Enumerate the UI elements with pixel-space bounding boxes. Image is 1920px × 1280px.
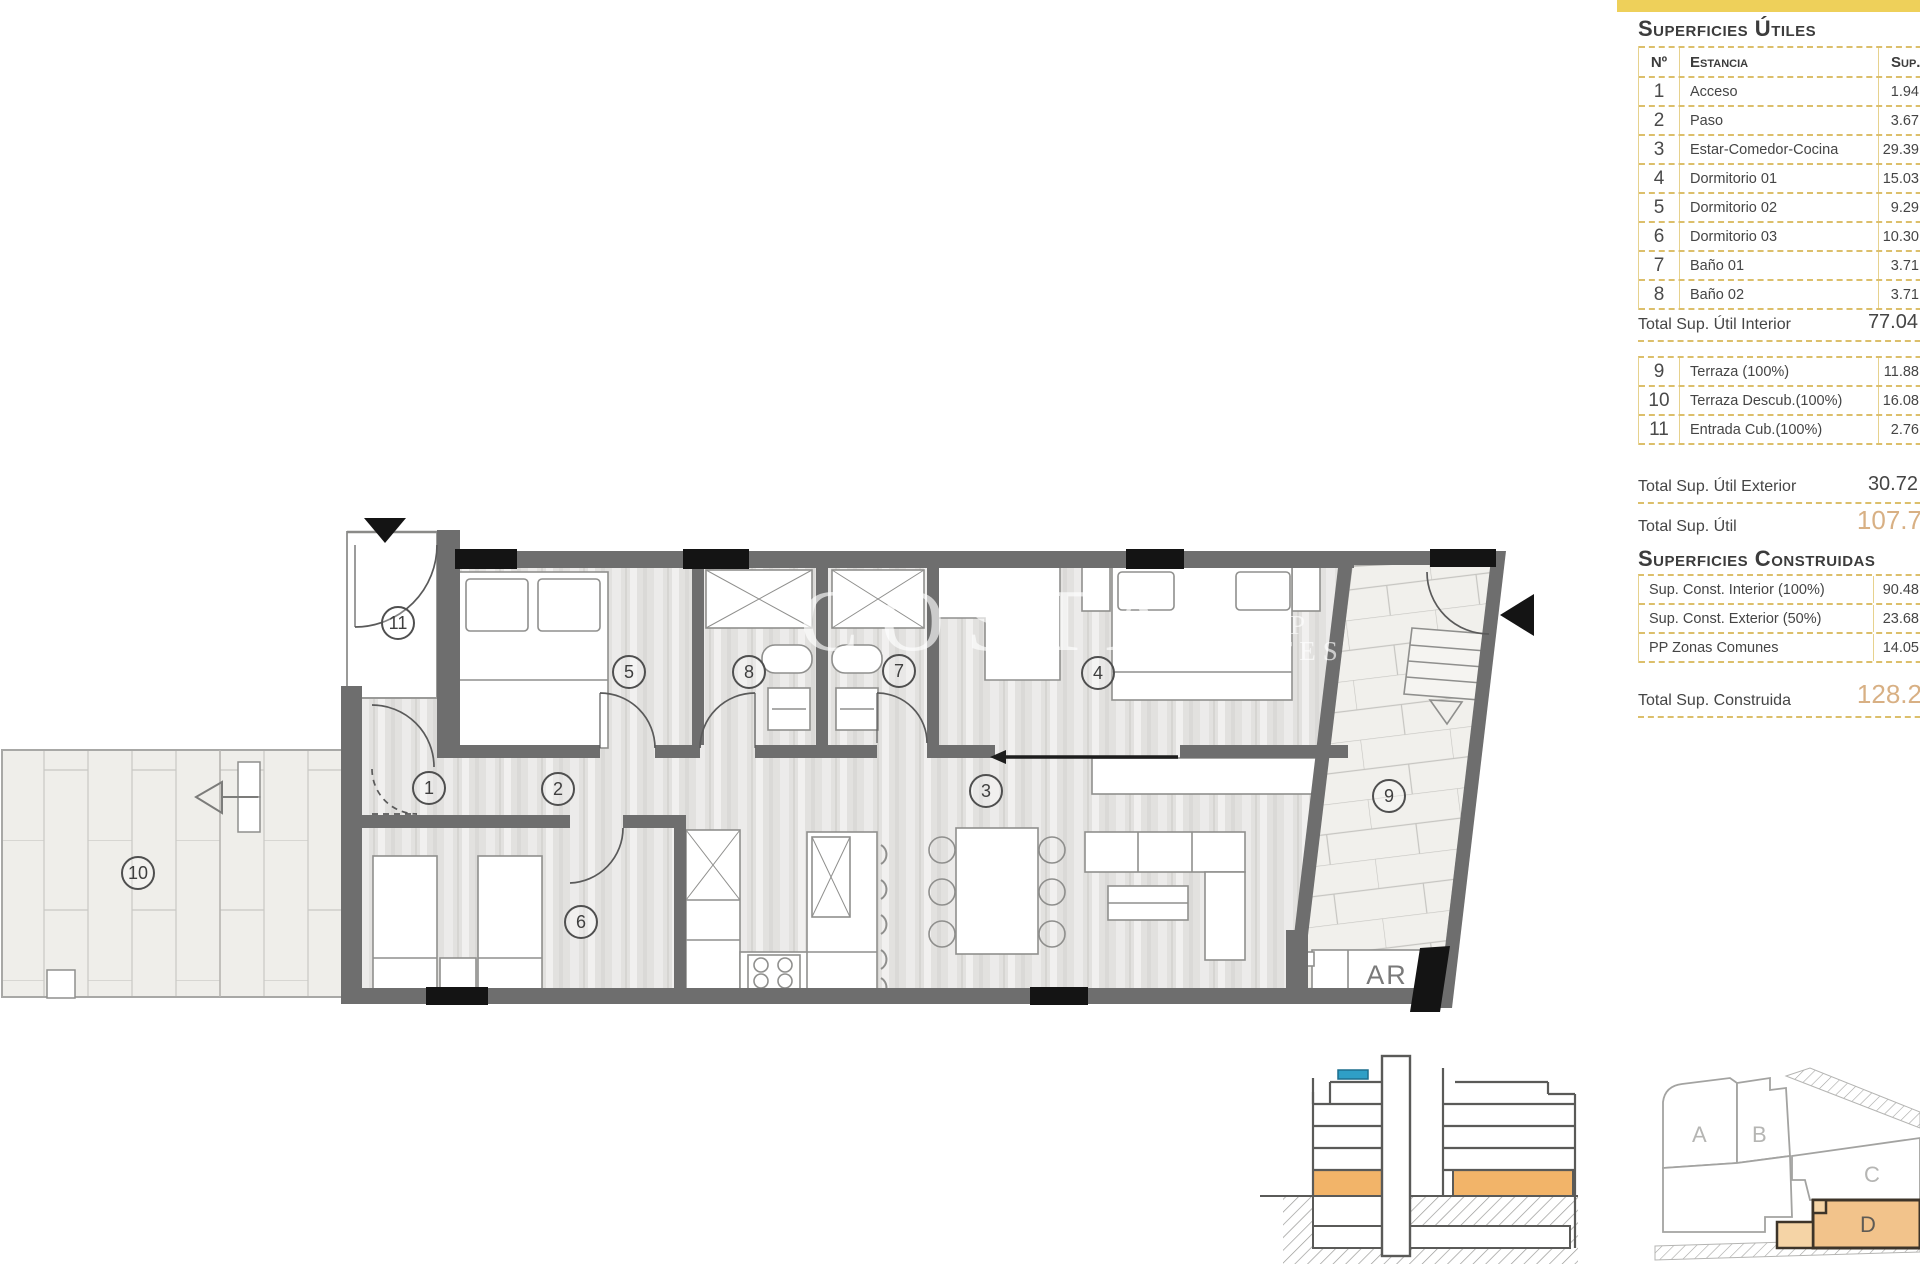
room-label-4: 4 [1081, 656, 1115, 690]
superficies-utiles-table: Nº Estancia Sup. Útil 1Acceso1.94 2Paso3… [1638, 46, 1920, 310]
superficies-exterior-table: 9Terraza (100%)11.88 10Terraza Descub.(1… [1638, 356, 1920, 445]
total-util-row: Total Sup. Útil 107.7 [1638, 496, 1920, 542]
site-block-d-label: D [1860, 1212, 1876, 1238]
room-label-9: 9 [1372, 779, 1406, 813]
room-label-3: 3 [969, 774, 1003, 808]
room-label-6: 6 [564, 905, 598, 939]
table-row: 5Dormitorio 029.29 [1639, 194, 1920, 223]
table-row: 7Baño 013.71 [1639, 252, 1920, 281]
table-row: Sup. Const. Exterior (50%)23.68 [1639, 605, 1920, 634]
bed-dormitorio-01 [1082, 565, 1320, 700]
table-row: 10Terraza Descub.(100%)16.08 [1639, 387, 1920, 416]
col-header-sup: Sup. Útil [1878, 48, 1920, 76]
bed-dormitorio-02 [458, 572, 608, 748]
table-row: Sup. Const. Interior (100%)90.48 [1639, 576, 1920, 605]
room-label-2: 2 [541, 772, 575, 806]
floorplan-sheet: { "panel": { "title_utiles": "Superficie… [0, 0, 1920, 1280]
total-interior-row: Total Sup. Útil Interior 77.04 [1638, 296, 1920, 342]
room-label-11: 11 [381, 606, 415, 640]
room-label-7: 7 [882, 654, 916, 688]
site-block-b-label: B [1752, 1122, 1767, 1148]
superficies-construidas-title: Superficies Construidas [1638, 546, 1920, 572]
total-construida-row: Total Sup. Construida 128.2 [1638, 670, 1920, 718]
superficies-construidas-table: Sup. Const. Interior (100%)90.48 Sup. Co… [1638, 574, 1920, 663]
room-label-1: 1 [412, 771, 446, 805]
floor-plan [0, 500, 1545, 1030]
col-header-estancia: Estancia [1679, 48, 1878, 76]
room-label-10: 10 [121, 856, 155, 890]
tv-console [1092, 758, 1320, 794]
room-label-8: 8 [732, 655, 766, 689]
site-plan-diagram [1650, 1050, 1920, 1265]
table-header-row: Nº Estancia Sup. Útil [1639, 46, 1920, 78]
table-row: 11Entrada Cub.(100%)2.76 [1639, 416, 1920, 445]
table-row: PP Zonas Comunes14.05 [1639, 634, 1920, 663]
stove [748, 955, 800, 991]
table-row: 4Dormitorio 0115.03 [1639, 165, 1920, 194]
table-row: 9Terraza (100%)11.88 [1639, 358, 1920, 387]
table-row: 3Estar-Comedor-Cocina29.39 [1639, 136, 1920, 165]
table-row: 2Paso3.67 [1639, 107, 1920, 136]
side-arrow-icon [1500, 594, 1534, 636]
col-header-n: Nº [1639, 54, 1679, 71]
gold-top-bar [1617, 0, 1920, 12]
site-block-a-label: A [1692, 1122, 1707, 1148]
site-block-c-label: C [1864, 1162, 1880, 1188]
superficies-utiles-title: Superficies Útiles [1638, 16, 1920, 42]
table-row: 6Dormitorio 0310.30 [1639, 223, 1920, 252]
room-label-5: 5 [612, 655, 646, 689]
table-row: 1Acceso1.94 [1639, 78, 1920, 107]
ar-closet-label: AR [1352, 960, 1422, 991]
terrace-10 [2, 750, 344, 998]
building-section-diagram [1255, 1048, 1580, 1276]
